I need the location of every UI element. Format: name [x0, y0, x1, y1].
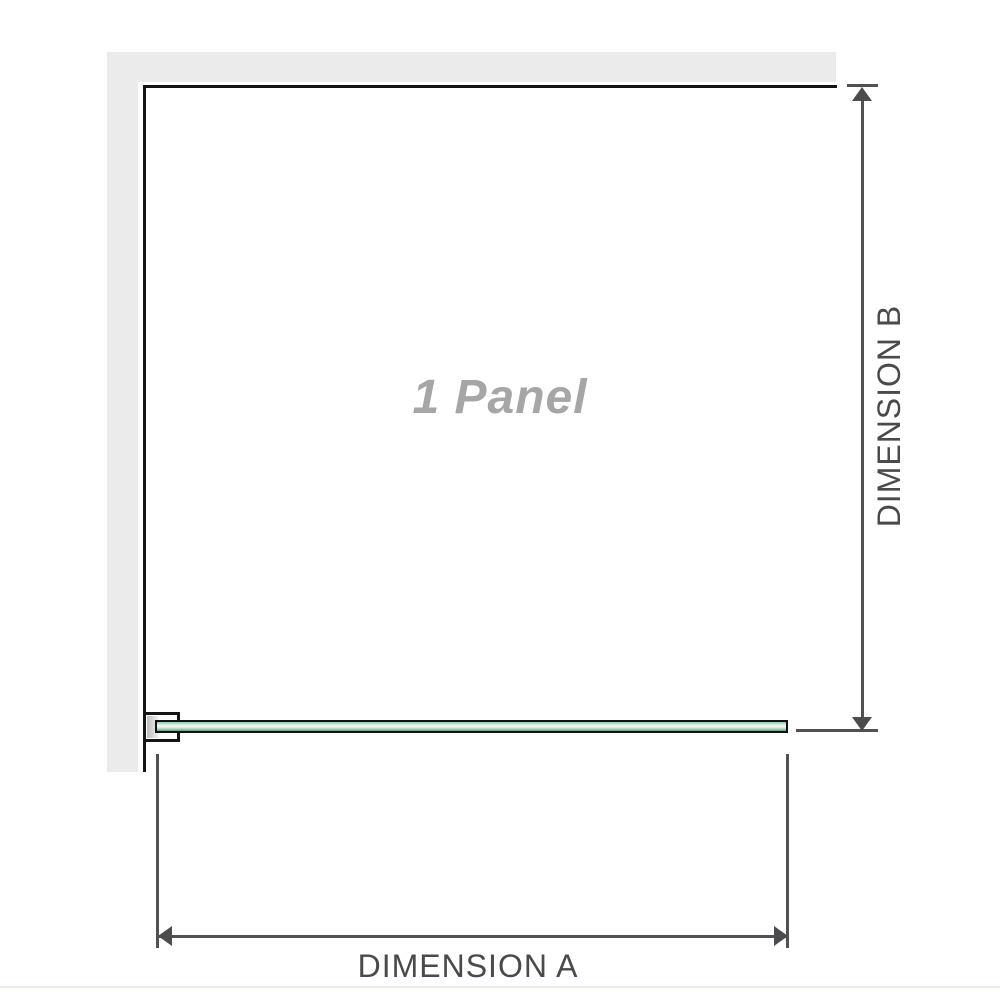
dimension-a-right-extension [786, 754, 789, 948]
arrow-down-icon [852, 717, 872, 731]
glass-panel [155, 720, 788, 733]
panel-top-border [143, 85, 837, 88]
page-divider [0, 986, 1000, 988]
panel-label: 1 Panel [350, 368, 650, 428]
arrow-right-icon [774, 926, 788, 946]
dimension-a-left-extension [156, 754, 159, 948]
arrow-left-icon [158, 926, 172, 946]
arrow-up-icon [852, 87, 872, 101]
panel-dimension-diagram: 1 Panel DIMENSION B DIMENSION A [0, 0, 1000, 1000]
left-wall [107, 52, 138, 772]
top-wall [107, 52, 836, 82]
dimension-a-line [159, 935, 788, 938]
dimension-b-line [861, 90, 864, 720]
panel-left-border [143, 85, 146, 772]
dimension-b-label: DIMENSION B [871, 266, 907, 566]
dimension-a-label: DIMENSION A [318, 948, 618, 984]
